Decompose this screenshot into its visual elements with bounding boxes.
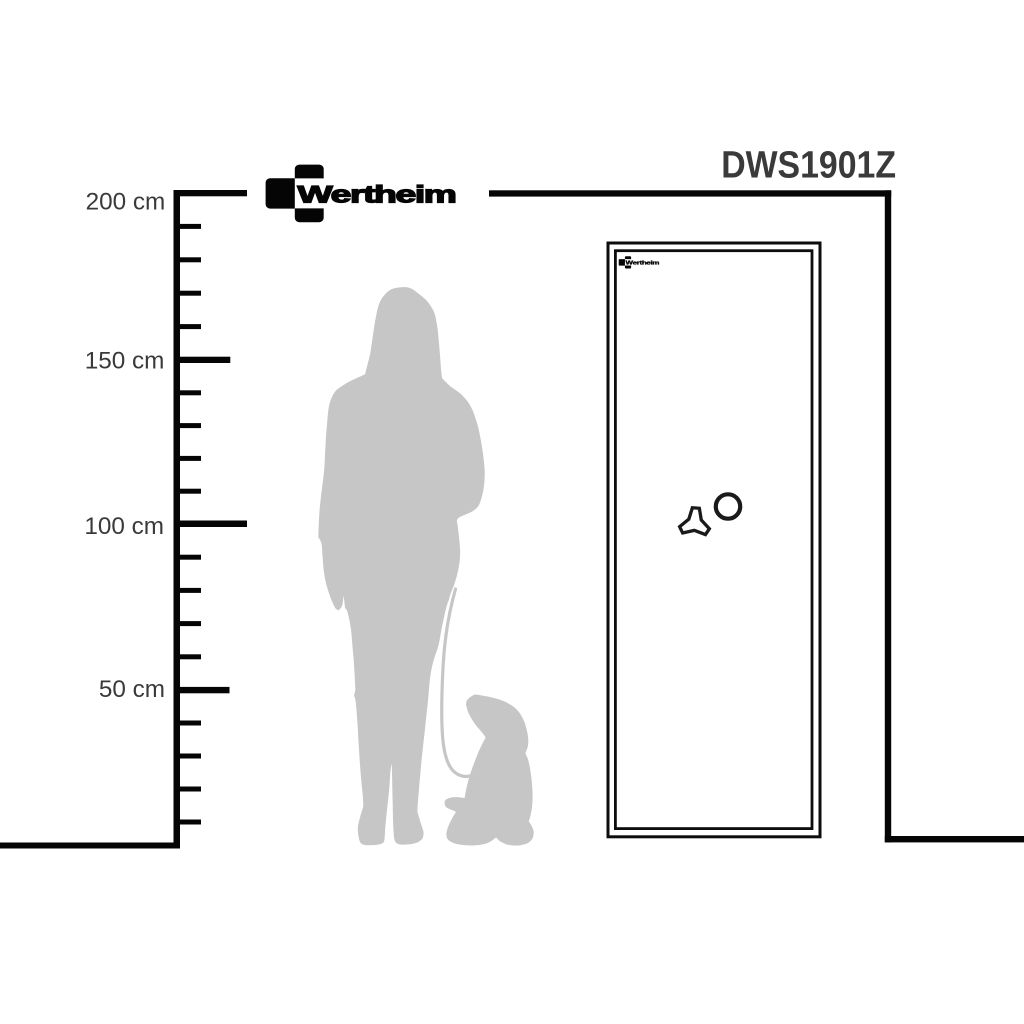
svg-text:50 cm: 50 cm	[99, 676, 165, 703]
svg-text:150 cm: 150 cm	[85, 348, 165, 375]
svg-text:200 cm: 200 cm	[86, 189, 166, 216]
svg-text:DWS1901Z: DWS1901Z	[721, 143, 896, 186]
svg-text:100 cm: 100 cm	[84, 513, 164, 540]
